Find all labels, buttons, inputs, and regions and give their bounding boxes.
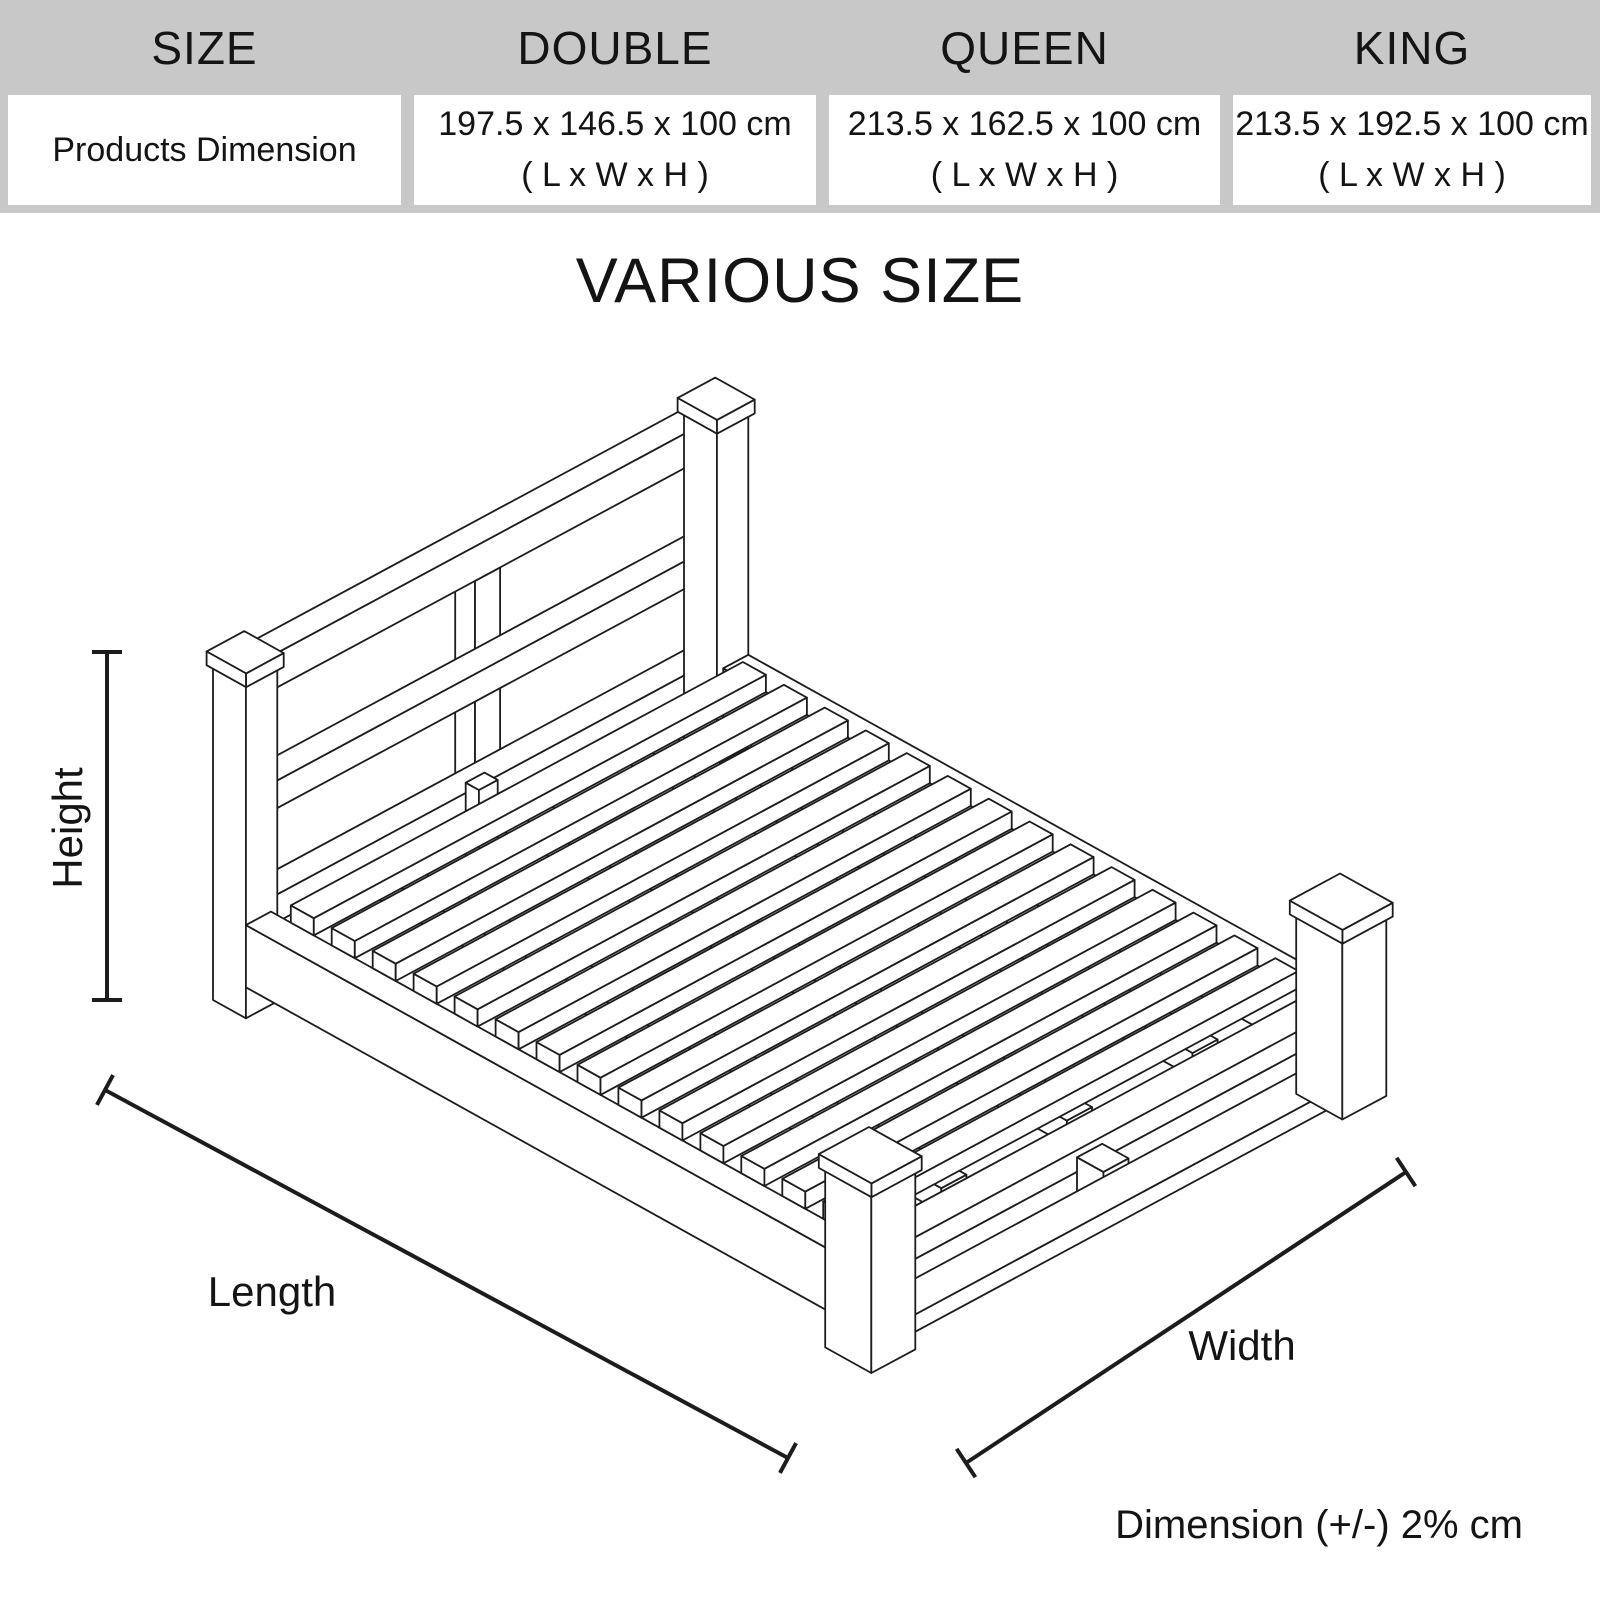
bed-frame-lines (207, 378, 1393, 1373)
double-unit-note: ( L x W x H ) (521, 150, 709, 201)
king-dimensions-cell: 213.5 x 192.5 x 100 cm ( L x W x H ) (1233, 95, 1591, 205)
row-label-cell: Products Dimension (8, 95, 401, 205)
queen-dimensions: 213.5 x 162.5 x 100 cm (848, 99, 1201, 150)
column-header-king: KING (1233, 0, 1591, 95)
size-table: SIZE DOUBLE QUEEN KING Products Dimensio… (0, 0, 1600, 213)
length-dimension-label: Length (122, 1266, 422, 1318)
queen-dimensions-cell: 213.5 x 162.5 x 100 cm ( L x W x H ) (829, 95, 1220, 205)
king-dimensions: 213.5 x 192.5 x 100 cm (1235, 99, 1588, 150)
column-header-queen: QUEEN (829, 0, 1220, 95)
row-label: Products Dimension (52, 125, 356, 176)
queen-unit-note: ( L x W x H ) (931, 150, 1119, 201)
product-dimension-page: SIZE DOUBLE QUEEN KING Products Dimensio… (0, 0, 1600, 1600)
column-header-size: SIZE (8, 0, 401, 95)
height-dimension-label: Height (40, 728, 96, 928)
double-dimensions-cell: 197.5 x 146.5 x 100 cm ( L x W x H ) (414, 95, 816, 205)
tolerance-note: Dimension (+/-) 2% cm (1115, 1505, 1523, 1545)
page-title: VARIOUS SIZE (0, 250, 1600, 313)
double-dimensions: 197.5 x 146.5 x 100 cm (438, 99, 791, 150)
king-unit-note: ( L x W x H ) (1318, 150, 1506, 201)
width-dimension-label: Width (1092, 1320, 1392, 1372)
column-header-double: DOUBLE (414, 0, 816, 95)
